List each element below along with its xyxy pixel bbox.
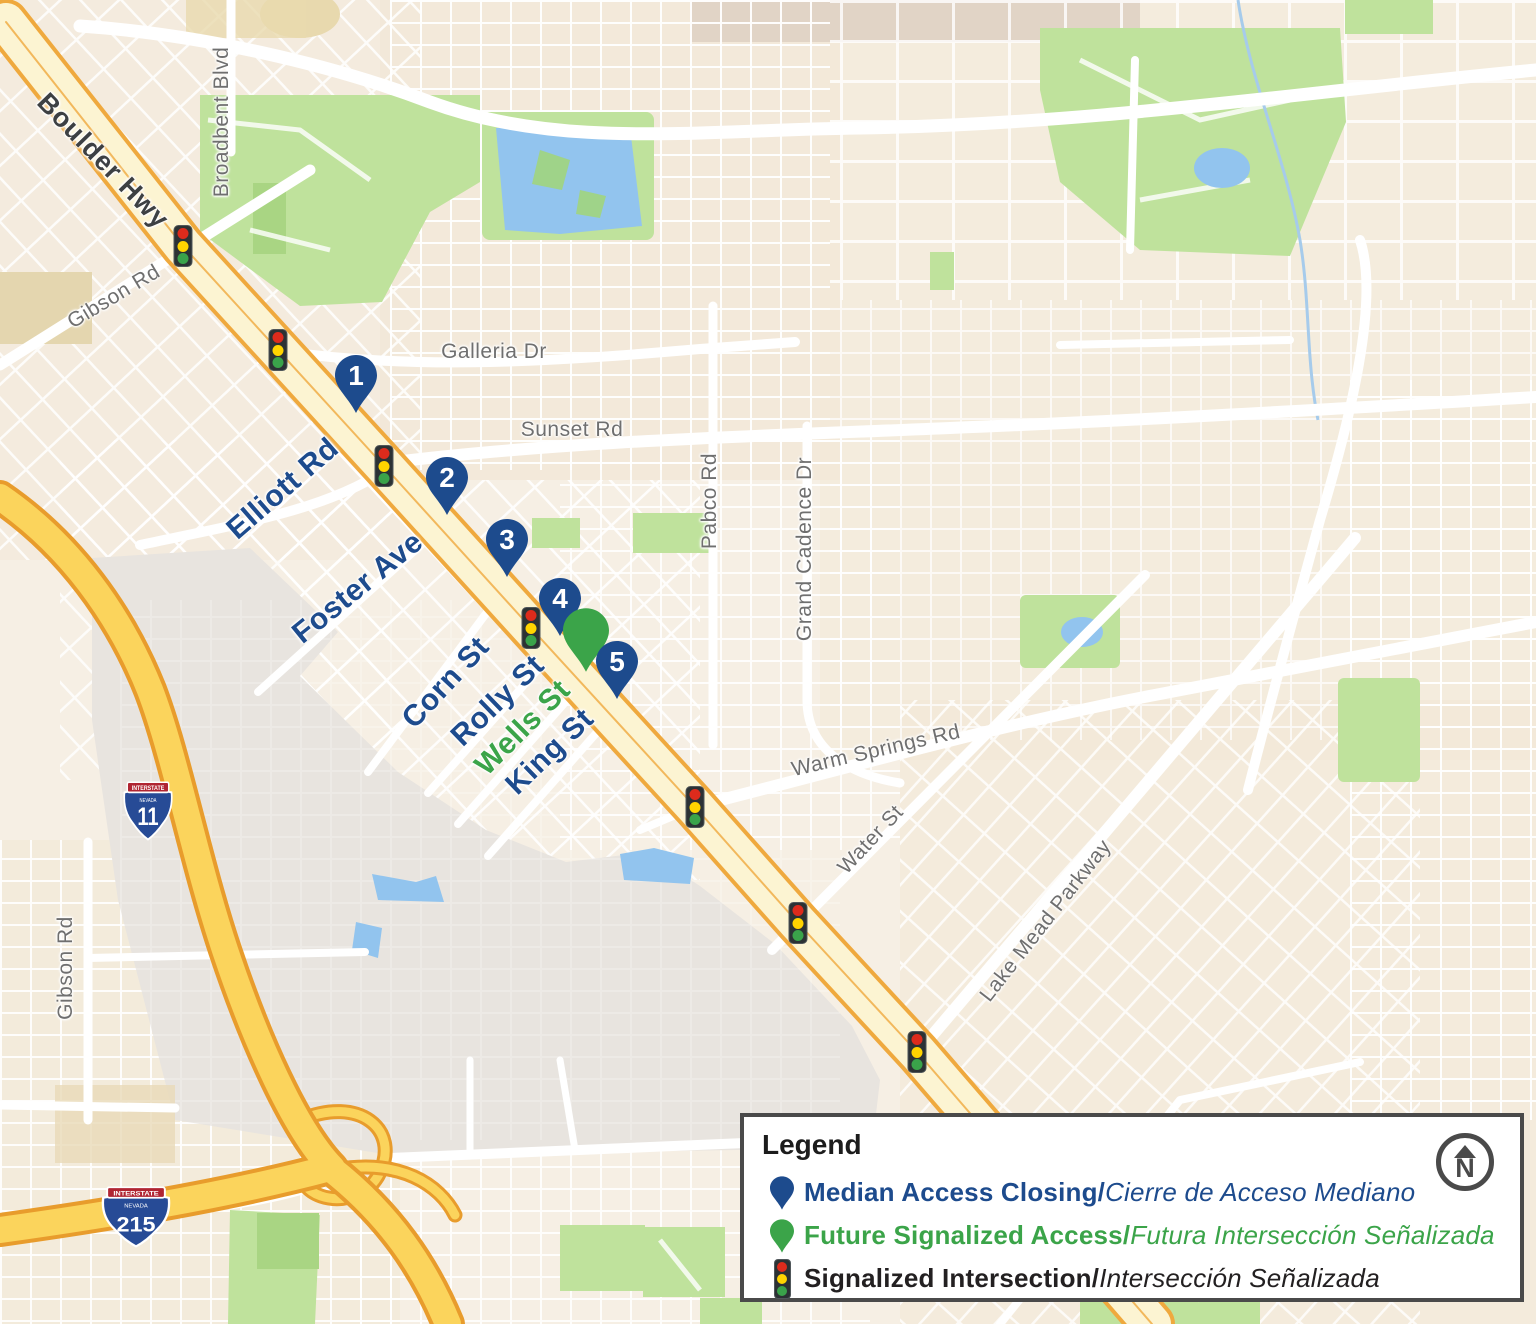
svg-text:NEVADA: NEVADA xyxy=(140,798,158,803)
svg-text:5: 5 xyxy=(609,646,625,677)
median-access-closing-marker-1: 1 xyxy=(335,355,377,418)
svg-text:NEVADA: NEVADA xyxy=(124,1204,148,1210)
traffic-light-icon xyxy=(789,902,808,944)
median-access-closing-marker-5: 5 xyxy=(596,641,638,704)
legend-item-label: Future Signalized Access/Futura Intersec… xyxy=(804,1220,1495,1251)
legend-item-future-signalized-access: Future Signalized Access/Futura Intersec… xyxy=(760,1214,1504,1257)
traffic-light-icon xyxy=(908,1031,927,1073)
svg-text:11: 11 xyxy=(137,803,158,830)
legend-title: Legend xyxy=(762,1129,1504,1161)
legend-item-median-access-closing: Median Access Closing/Cierre de Acceso M… xyxy=(760,1171,1504,1214)
interstate-215-shield-icon: INTERSTATENEVADA215 xyxy=(97,1187,175,1254)
legend-item-label: Median Access Closing/Cierre de Acceso M… xyxy=(804,1177,1415,1208)
pin-navy-icon xyxy=(760,1176,804,1210)
traffic-light-icon xyxy=(522,607,541,649)
svg-text:2: 2 xyxy=(439,462,455,493)
svg-text:INTERSTATE: INTERSTATE xyxy=(132,786,165,793)
median-access-closing-marker-3: 3 xyxy=(486,519,528,582)
legend-item-label: Signalized Intersection/Intersección Señ… xyxy=(804,1263,1380,1294)
map-canvas: Boulder HwyBroadbent BlvdGibson RdGaller… xyxy=(0,0,1536,1324)
pin-green-icon xyxy=(760,1219,804,1253)
median-access-closing-marker-2: 2 xyxy=(426,457,468,520)
traffic-light-icon xyxy=(375,445,394,487)
svg-text:3: 3 xyxy=(499,524,515,555)
traffic-light-icon xyxy=(686,786,705,828)
svg-text:INTERSTATE: INTERSTATE xyxy=(113,1191,159,1198)
svg-text:1: 1 xyxy=(348,360,364,391)
north-indicator: N xyxy=(1436,1133,1494,1191)
north-label: N xyxy=(1455,1156,1475,1180)
traffic-light-icon xyxy=(269,329,288,371)
interstate-11-shield-icon: INTERSTATENEVADA11 xyxy=(120,782,176,847)
legend-panel: Legend Median Access Closing/Cierre de A… xyxy=(740,1113,1524,1302)
traffic-light-icon xyxy=(760,1259,804,1299)
legend-item-signalized-intersection: Signalized Intersection/Intersección Señ… xyxy=(760,1257,1504,1300)
svg-text:215: 215 xyxy=(116,1213,155,1237)
traffic-light-icon xyxy=(174,225,193,267)
